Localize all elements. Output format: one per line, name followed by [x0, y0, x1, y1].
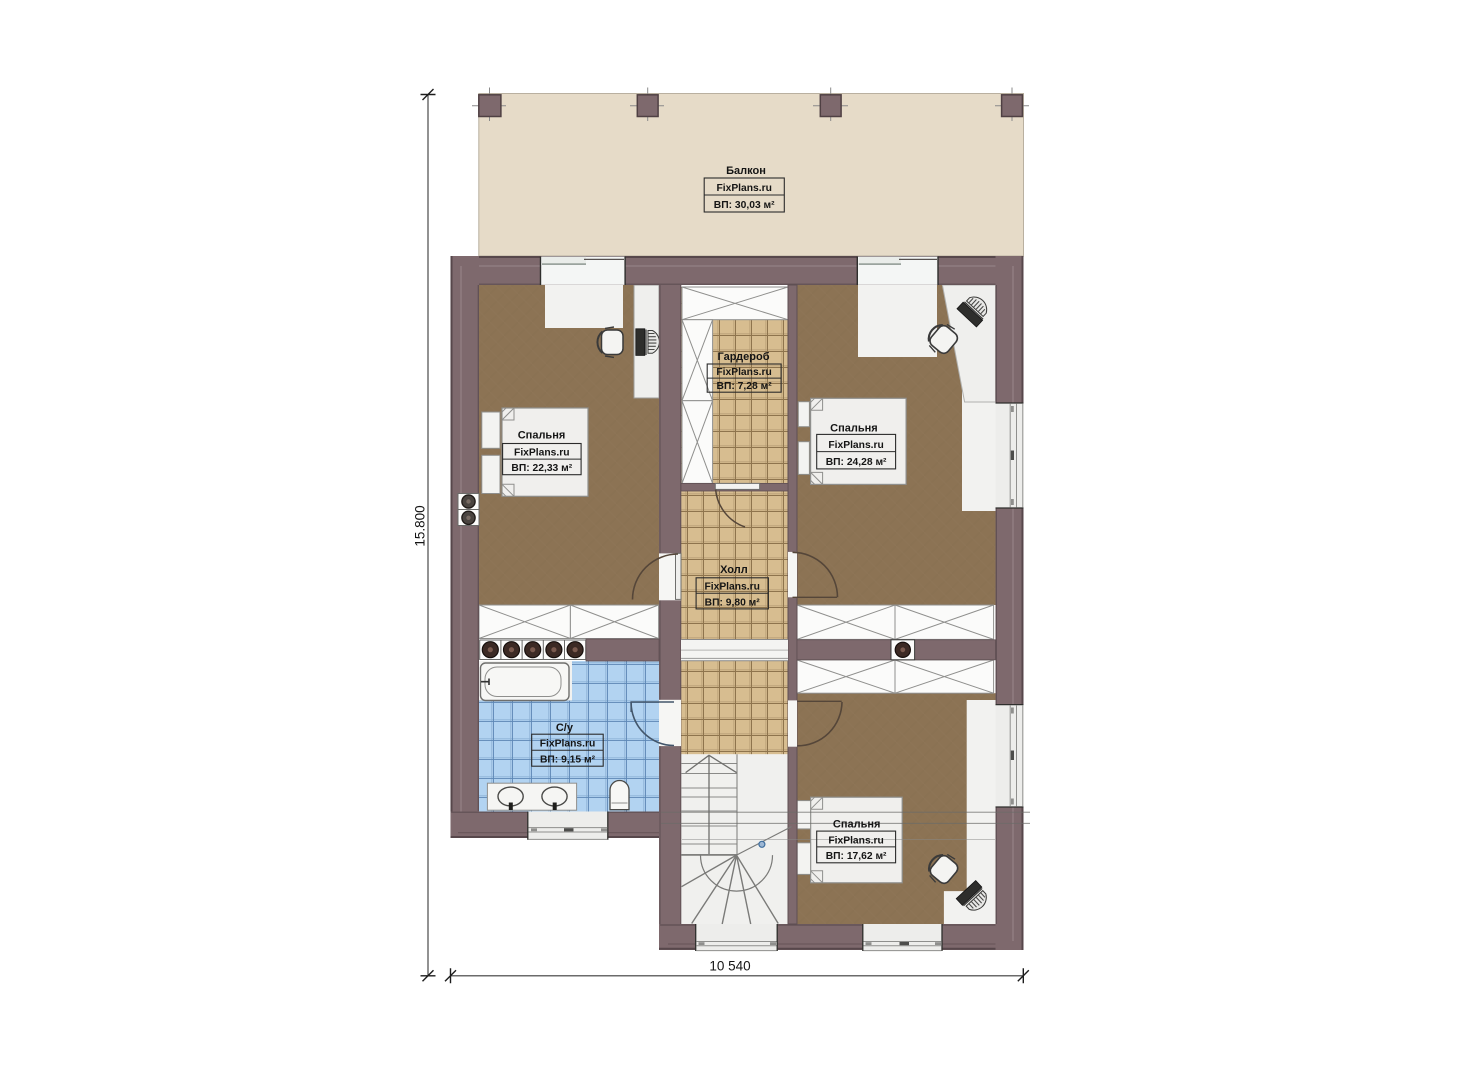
svg-text:С/у: С/у: [556, 722, 574, 734]
svg-text:15.800: 15.800: [413, 505, 428, 546]
svg-text:ВП: 22,33 м²: ВП: 22,33 м²: [511, 463, 572, 474]
svg-text:Спальня: Спальня: [518, 430, 566, 442]
svg-text:FixPlans.ru: FixPlans.ru: [704, 582, 760, 593]
svg-text:FixPlans.ru: FixPlans.ru: [514, 447, 570, 458]
svg-text:Холл: Холл: [720, 564, 748, 576]
svg-text:ВП: 9,80 м²: ВП: 9,80 м²: [705, 597, 761, 608]
svg-text:10 540: 10 540: [709, 959, 750, 974]
svg-text:Спальня: Спальня: [830, 422, 878, 434]
svg-text:ВП: 17,62 м²: ВП: 17,62 м²: [826, 851, 887, 862]
svg-text:FixPlans.ru: FixPlans.ru: [716, 183, 772, 194]
svg-text:Гардероб: Гардероб: [718, 351, 770, 363]
svg-text:FixPlans.ru: FixPlans.ru: [540, 738, 596, 749]
svg-text:FixPlans.ru: FixPlans.ru: [716, 367, 772, 378]
svg-text:FixPlans.ru: FixPlans.ru: [828, 835, 884, 846]
svg-text:Балкон: Балкон: [726, 165, 766, 177]
svg-text:ВП: 9,15 м²: ВП: 9,15 м²: [540, 754, 596, 765]
svg-text:FixPlans.ru: FixPlans.ru: [828, 440, 884, 451]
svg-text:ВП: 30,03 м²: ВП: 30,03 м²: [714, 200, 775, 211]
svg-text:Спальня: Спальня: [833, 819, 881, 831]
svg-text:ВП: 7,28 м²: ВП: 7,28 м²: [717, 381, 773, 392]
svg-text:ВП: 24,28 м²: ВП: 24,28 м²: [826, 457, 887, 468]
